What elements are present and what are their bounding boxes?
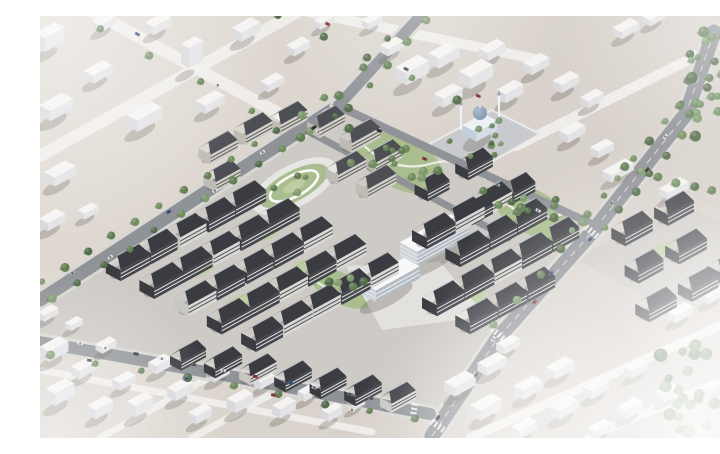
masterplan-render: [40, 16, 720, 438]
masterplan-svg: [40, 16, 720, 438]
haze: [40, 16, 720, 438]
